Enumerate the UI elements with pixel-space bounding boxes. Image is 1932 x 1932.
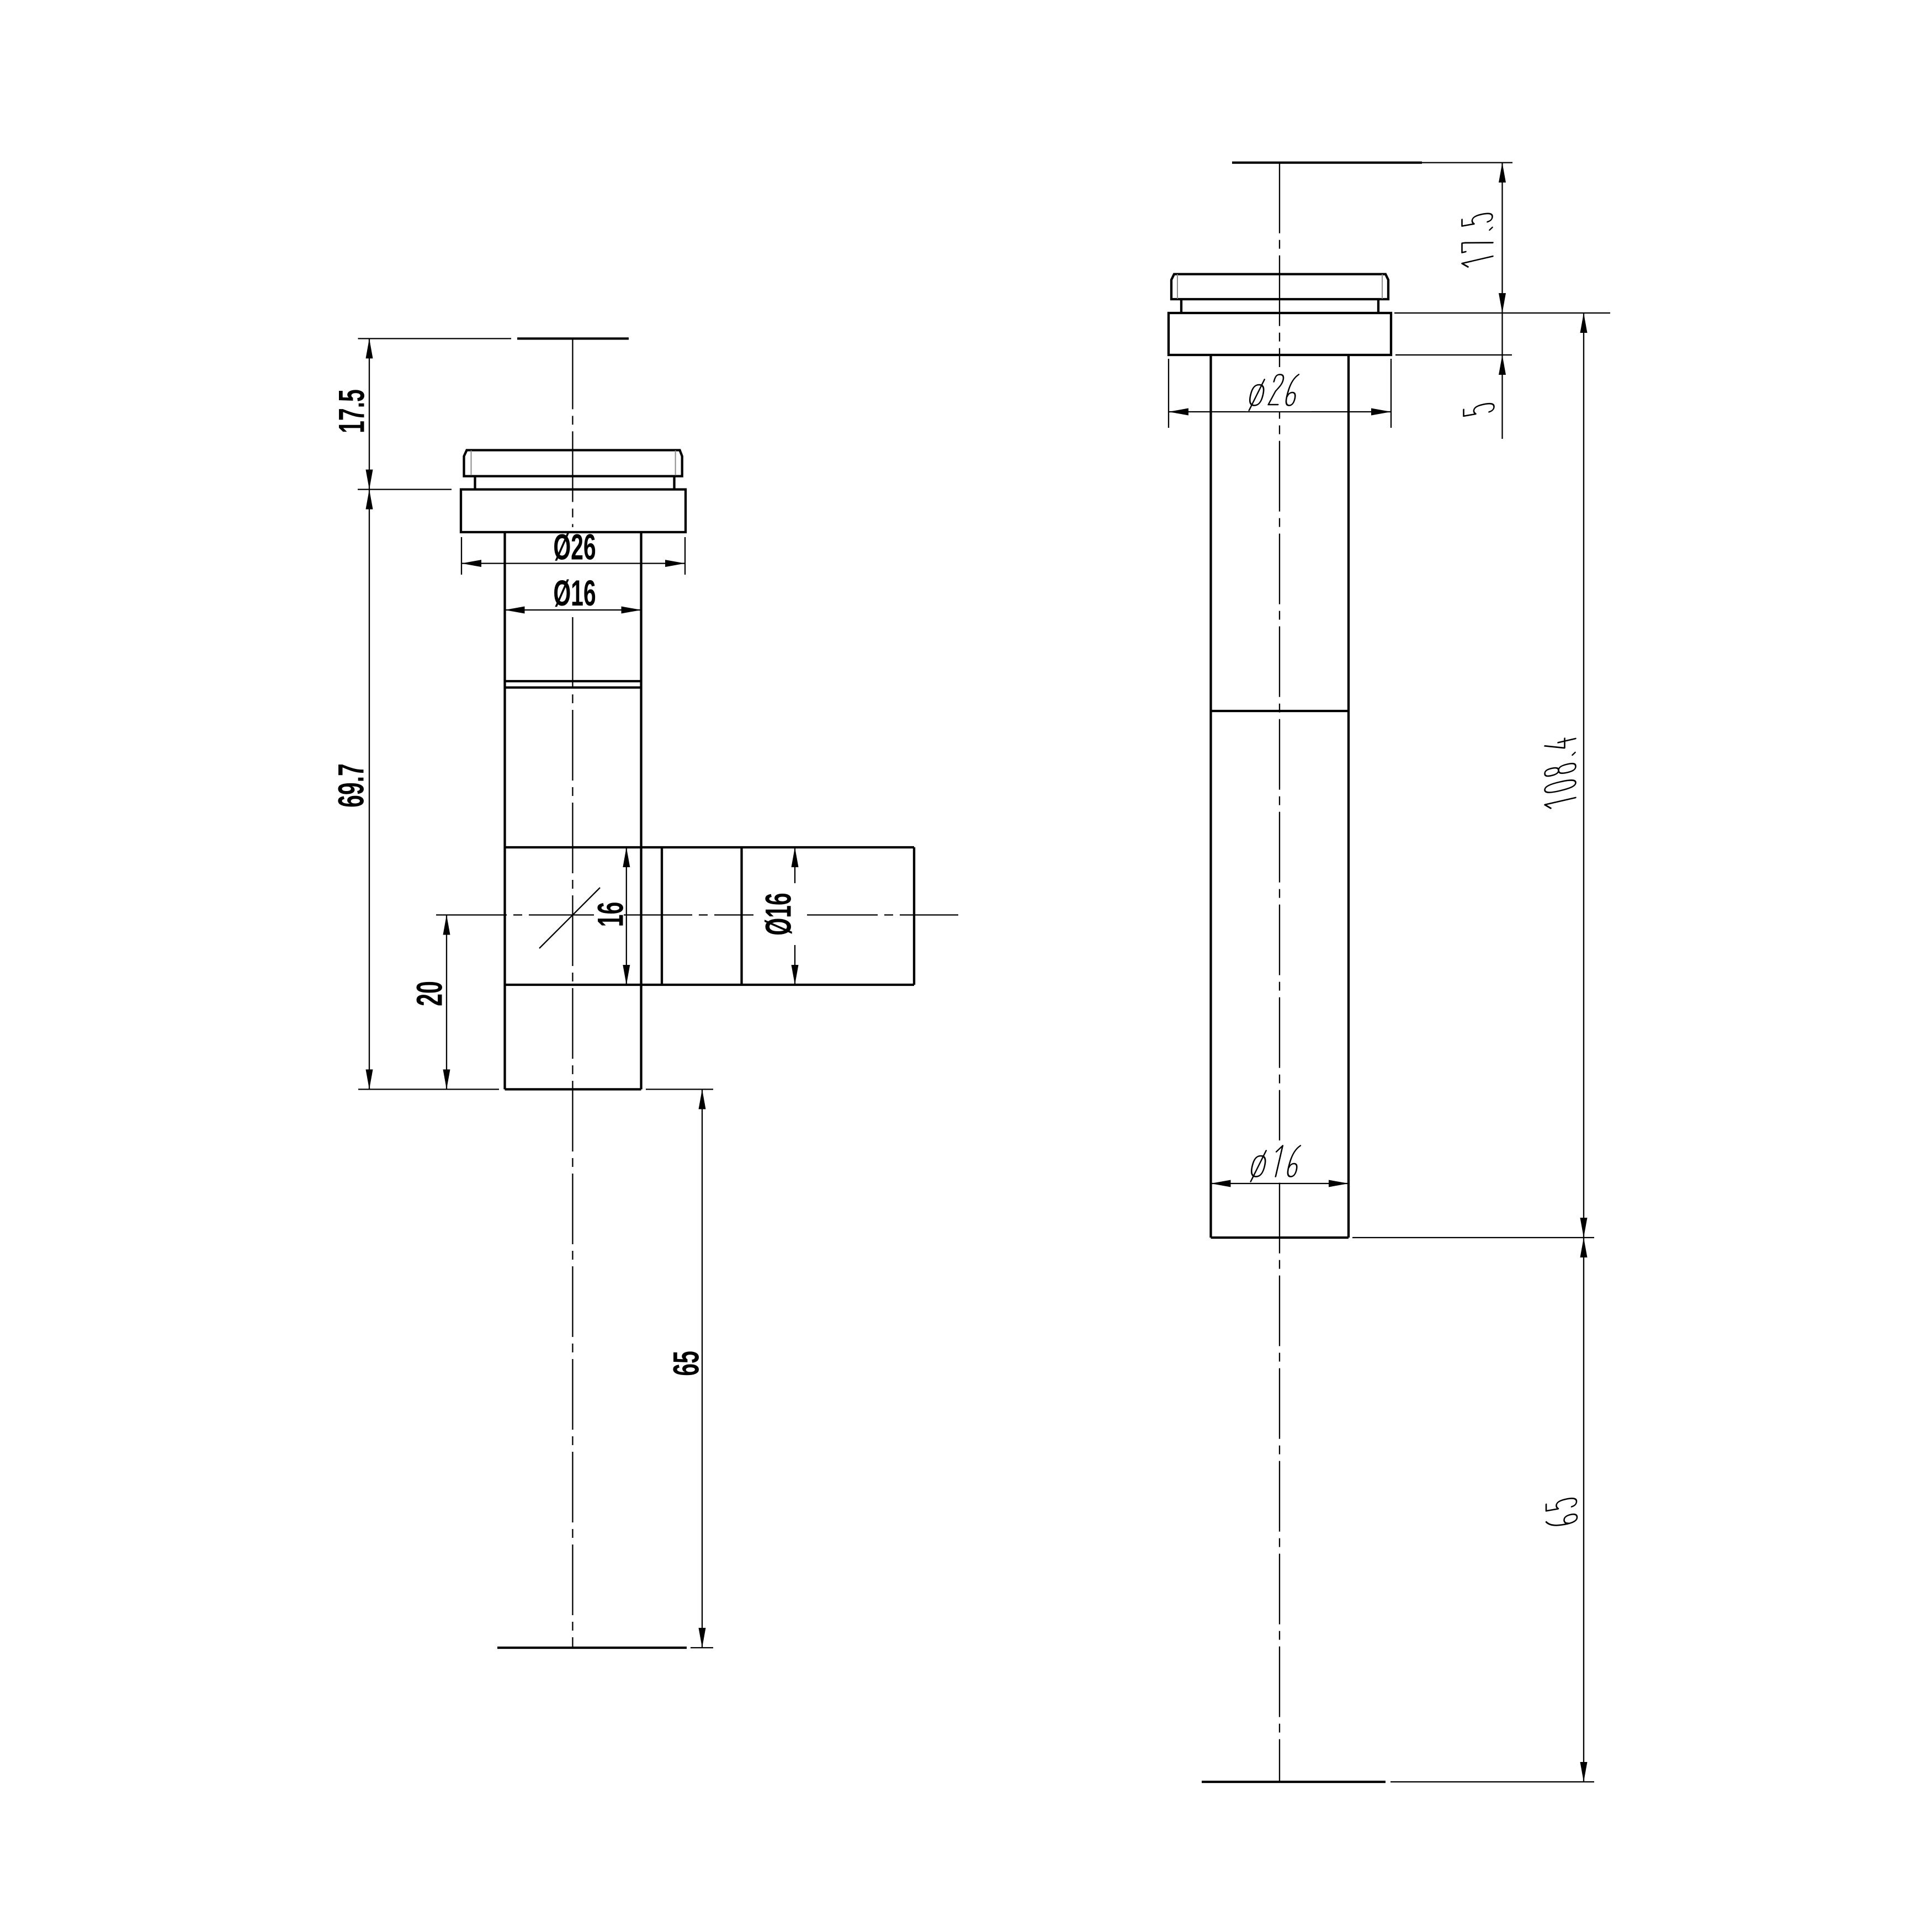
svg-text:Ø26: Ø26 <box>553 527 596 568</box>
svg-text:65: 65 <box>666 1351 707 1376</box>
svg-text:Ø16: Ø16 <box>758 893 799 935</box>
svg-text:69.7: 69.7 <box>331 763 372 808</box>
svg-text:Ø16: Ø16 <box>553 572 596 614</box>
svg-text:17.5: 17.5 <box>331 389 373 433</box>
svg-text:16: 16 <box>590 902 631 927</box>
svg-text:20: 20 <box>409 981 450 1006</box>
